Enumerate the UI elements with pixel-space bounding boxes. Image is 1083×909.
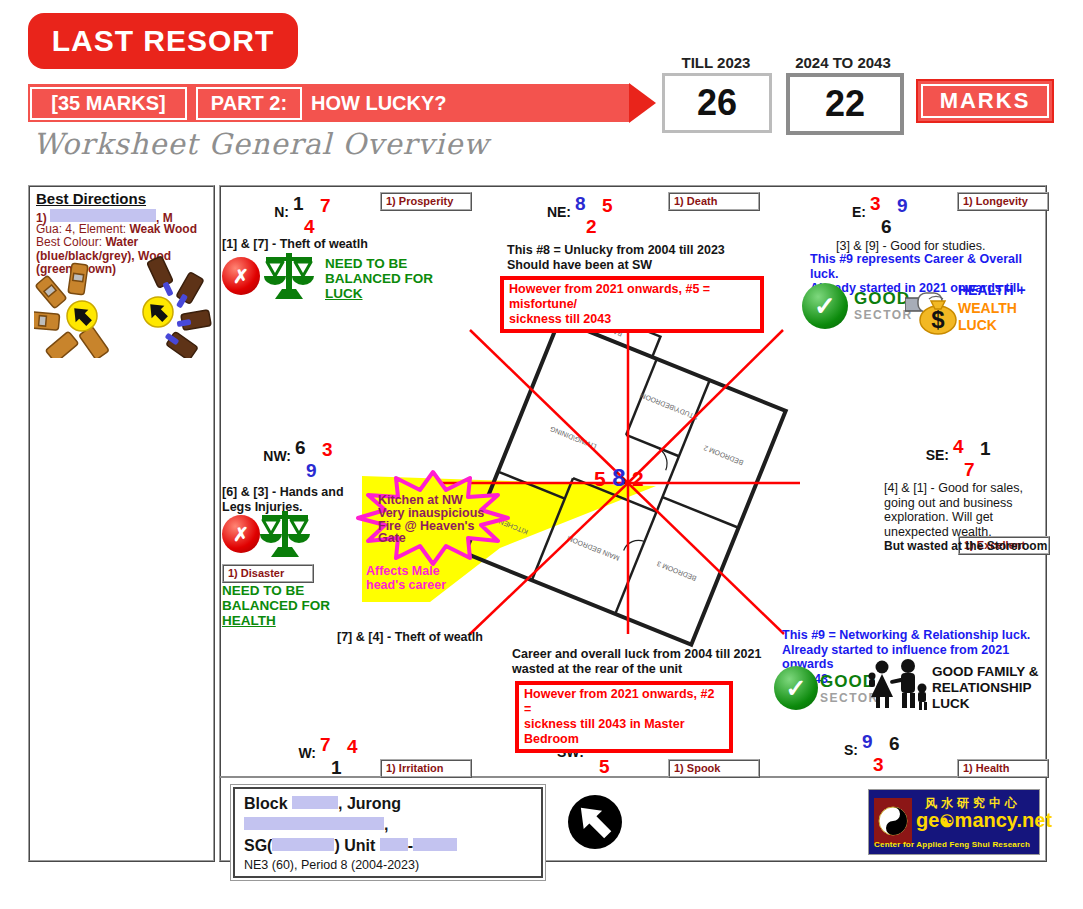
se-note-bold: But wasted at the Storeroom <box>884 539 1054 554</box>
flying-star: 6 <box>889 733 900 755</box>
redacted-name-bar <box>50 209 156 222</box>
sector-tag-death: 1) Death <box>668 192 760 211</box>
ne-note: This #8 = Unlucky from 2004 till 2023 Sh… <box>507 243 777 272</box>
address-line-2: SG() Unit - <box>244 835 532 856</box>
ne-alert-box: However from 2021 onwards, #5 = misfortu… <box>500 276 764 333</box>
family-luck-line: GOOD FAMILY & <box>932 664 1039 680</box>
ne-alert-line: sickness till 2043 <box>509 312 755 327</box>
career-line: wasted at the rear of the unit <box>512 662 772 677</box>
family-luck-line: RELATIONSHIP <box>932 680 1039 696</box>
redacted-block-bar <box>292 796 338 809</box>
marks-badge-label: MARKS <box>921 84 1049 118</box>
good-word: GOOD <box>854 291 913 307</box>
redacted-unit-bar <box>413 838 457 851</box>
balance-note-text: NEED TO BE BALANCED FOR <box>325 256 433 286</box>
sector-s: S: 9 6 3 <box>826 731 918 781</box>
starburst-line: Kitchen at NW <box>378 494 484 507</box>
pointer-arrow-icon <box>629 83 656 123</box>
sw-alert-line: sickness till 2043 in Master Bedroom <box>524 717 724 747</box>
best-direction-compass-icon-2 <box>124 254 212 358</box>
sector-tag-longevity: 1) Longevity <box>957 192 1049 211</box>
gua-prefix: Gua: 4, Element: <box>36 222 129 236</box>
flying-star: 6 <box>295 437 306 459</box>
n-balance-note: NEED TO BE BALANCED FOR LUCK <box>325 256 443 301</box>
question-text: HOW LUCKY? <box>311 92 447 115</box>
geomancy-logo: 风水研究中心 ge☯mancy.net Center for Applied F… <box>868 789 1040 855</box>
sector-w: W: 7 4 1 <box>284 734 376 784</box>
worksheet-page: LAST RESORT [35 MARKS] PART 2: HOW LUCKY… <box>0 0 1083 909</box>
score-2024-2043: 22 <box>786 73 904 135</box>
sector-tag-disaster: 1) Disaster <box>222 564 314 583</box>
yin-yang-icon <box>877 805 909 837</box>
direction-label: S: <box>818 742 858 758</box>
flying-star: 4 <box>304 216 315 238</box>
flying-star: 5 <box>599 756 610 778</box>
e-blue-line: This #9 represents Career & Overall luck… <box>810 252 1050 281</box>
flying-star: 7 <box>964 459 975 481</box>
part2-box: PART 2: <box>196 87 302 120</box>
sw-alert-box: However from 2021 onwards, #2 = sickness… <box>515 681 733 753</box>
ne-alert-line: However from 2021 onwards, #5 = misfortu… <box>509 282 755 312</box>
family-icon <box>864 657 930 715</box>
se-note: [4] & [1] - Good for sales, going out an… <box>884 481 1044 554</box>
flying-star: 1 <box>980 438 991 460</box>
flying-star: 6 <box>881 216 892 238</box>
sector-tag-spook: 1) Spook <box>668 759 760 778</box>
sector-tag-irritation: 1) Irritation <box>380 759 472 778</box>
part2-banner: [35 MARKS] PART 2: HOW LUCKY? <box>28 84 629 122</box>
score-till-2023: 26 <box>662 73 772 133</box>
address-text: SG( <box>244 837 272 854</box>
luck-line: LUCK <box>958 317 1026 335</box>
sector-e: E: 3 9 6 <box>834 193 926 243</box>
center-star: 2 <box>632 467 644 490</box>
center-flying-stars: 5 8 2 <box>594 464 644 492</box>
last-resort-badge: LAST RESORT <box>28 13 298 69</box>
colour-prefix: Best Colour: <box>36 235 105 249</box>
address-text: Block <box>244 795 292 812</box>
starburst-line: Very inauspicious <box>378 507 484 520</box>
yin-yang-glyph: ☯ <box>939 812 954 831</box>
flying-star: 3 <box>322 439 333 461</box>
chart-meta: NE3 (60), Period 8 (2004-2023) <box>244 858 532 872</box>
best-directions-title: Best Directions <box>36 190 146 207</box>
s9-line: This #9 = Networking & Relationship luck… <box>782 628 1050 643</box>
flying-star: 1 <box>331 757 342 779</box>
center-star: 8 <box>612 464 625 491</box>
address-text: , <box>384 816 388 833</box>
balance-note-word: LUCK <box>325 286 363 301</box>
balance-note-word: HEALTH <box>222 613 276 628</box>
good-check-icon: ✓ <box>802 283 848 329</box>
sector-se: SE: 4 1 7 <box>917 436 1009 486</box>
facing-direction-icon <box>566 793 624 851</box>
affects-male-note: Affects Male head's career <box>366 564 446 592</box>
bad-cross-icon: ✗ <box>222 257 260 295</box>
sector-tag-health: 1) Health <box>957 759 1049 778</box>
good-sector-label: GOOD SECTOR <box>854 291 913 323</box>
family-luck-line: LUCK <box>932 696 1039 712</box>
nw-balance-note: NEED TO BE BALANCED FOR HEALTH <box>222 583 332 628</box>
sw-alert-line: However from 2021 onwards, #2 = <box>524 687 724 717</box>
gua-element: Weak Wood <box>129 222 197 236</box>
family-luck-label: GOOD FAMILY & RELATIONSHIP LUCK <box>932 664 1039 712</box>
logo-caption: Center for Applied Feng Shui Research <box>874 840 1030 849</box>
flying-star: 9 <box>306 460 317 482</box>
affects-line: head's career <box>366 578 446 592</box>
redacted-floor-bar <box>380 838 408 851</box>
logo-domain-pre: ge <box>916 809 939 831</box>
flying-star: 7 <box>320 734 331 756</box>
direction-label: E: <box>826 204 866 220</box>
period-2024-2043-label: 2024 TO 2043 <box>786 54 900 71</box>
flying-star: 3 <box>870 193 881 215</box>
affects-line: Affects Male <box>366 564 446 578</box>
health-line: HEALTH + <box>958 282 1026 300</box>
balance-scale-icon <box>258 507 312 561</box>
balance-note-text: NEED TO BE BALANCED FOR <box>222 583 330 613</box>
flying-star: 8 <box>575 193 586 215</box>
wealth-line: WEALTH <box>958 300 1026 318</box>
flying-star: 1 <box>293 193 304 215</box>
logo-domain-post: mancy.net <box>955 809 1052 831</box>
address-box: Block , Jurong , SG() Unit - NE3 (60), P… <box>230 784 546 881</box>
address-text: ) Unit <box>334 837 379 854</box>
redacted-street-bar <box>244 817 384 830</box>
marks-badge: MARKS <box>916 79 1054 123</box>
till-2023-label: TILL 2023 <box>662 54 770 71</box>
svg-text:$: $ <box>931 306 945 333</box>
sector-nw: NW: 6 3 9 <box>259 437 351 487</box>
direction-label: W: <box>276 745 316 761</box>
health-wealth-label: HEALTH + WEALTH LUCK <box>958 282 1026 335</box>
direction-label: N: <box>249 204 289 220</box>
money-bag-icon: $ <box>905 283 959 335</box>
career-line: Career and overall luck from 2004 till 2… <box>512 647 772 662</box>
direction-label: SE: <box>909 447 949 463</box>
balance-scale-icon <box>262 249 316 303</box>
sector-word: SECTOR <box>854 307 913 323</box>
bagua-emblem <box>874 798 912 844</box>
marks-bracket-box: [35 MARKS] <box>30 87 187 120</box>
direction-label: NE: <box>531 204 571 220</box>
n-pair-note: [1] & [7] - Theft of weatlh <box>222 237 422 252</box>
page-title: Worksheet General Overview <box>33 127 489 161</box>
center-star: 5 <box>594 467 606 490</box>
flying-star: 5 <box>602 195 613 217</box>
direction-label: NW: <box>251 448 291 464</box>
best-direction-compass-icon-1 <box>34 258 122 358</box>
flying-star: 9 <box>862 731 873 753</box>
flying-star: 3 <box>873 754 884 776</box>
flying-star: 4 <box>347 736 358 758</box>
career-note: Career and overall luck from 2004 till 2… <box>512 647 772 676</box>
sector-n: N: 1 7 4 <box>257 193 349 243</box>
ne-note-line: Should have been at SW <box>507 258 777 273</box>
address-text: , Jurong <box>338 795 401 812</box>
redacted-postal-bar <box>272 838 334 851</box>
logo-domain: ge☯mancy.net <box>916 809 1052 832</box>
bad-cross-icon: ✗ <box>222 515 260 553</box>
sector-tag-prosperity: 1) Prosperity <box>380 192 472 211</box>
good-check-icon: ✓ <box>774 666 818 710</box>
address-line-1: Block , Jurong , <box>244 793 532 835</box>
sector-ne: NE: 8 5 2 <box>539 193 631 243</box>
flying-star: 2 <box>586 216 597 238</box>
flying-star: 7 <box>320 195 331 217</box>
starburst-text: Kitchen at NW Very inauspicious Fire @ H… <box>378 494 484 545</box>
se-note-text: [4] & [1] - Good for sales, going out an… <box>884 481 1023 539</box>
ne-note-line: This #8 = Unlucky from 2004 till 2023 <box>507 243 777 258</box>
starburst-line: Gate <box>378 532 484 545</box>
flying-star: 9 <box>897 195 908 217</box>
flying-star: 4 <box>953 436 964 458</box>
sw-pair-note: [7] & [4] - Theft of weatlh <box>337 630 527 645</box>
